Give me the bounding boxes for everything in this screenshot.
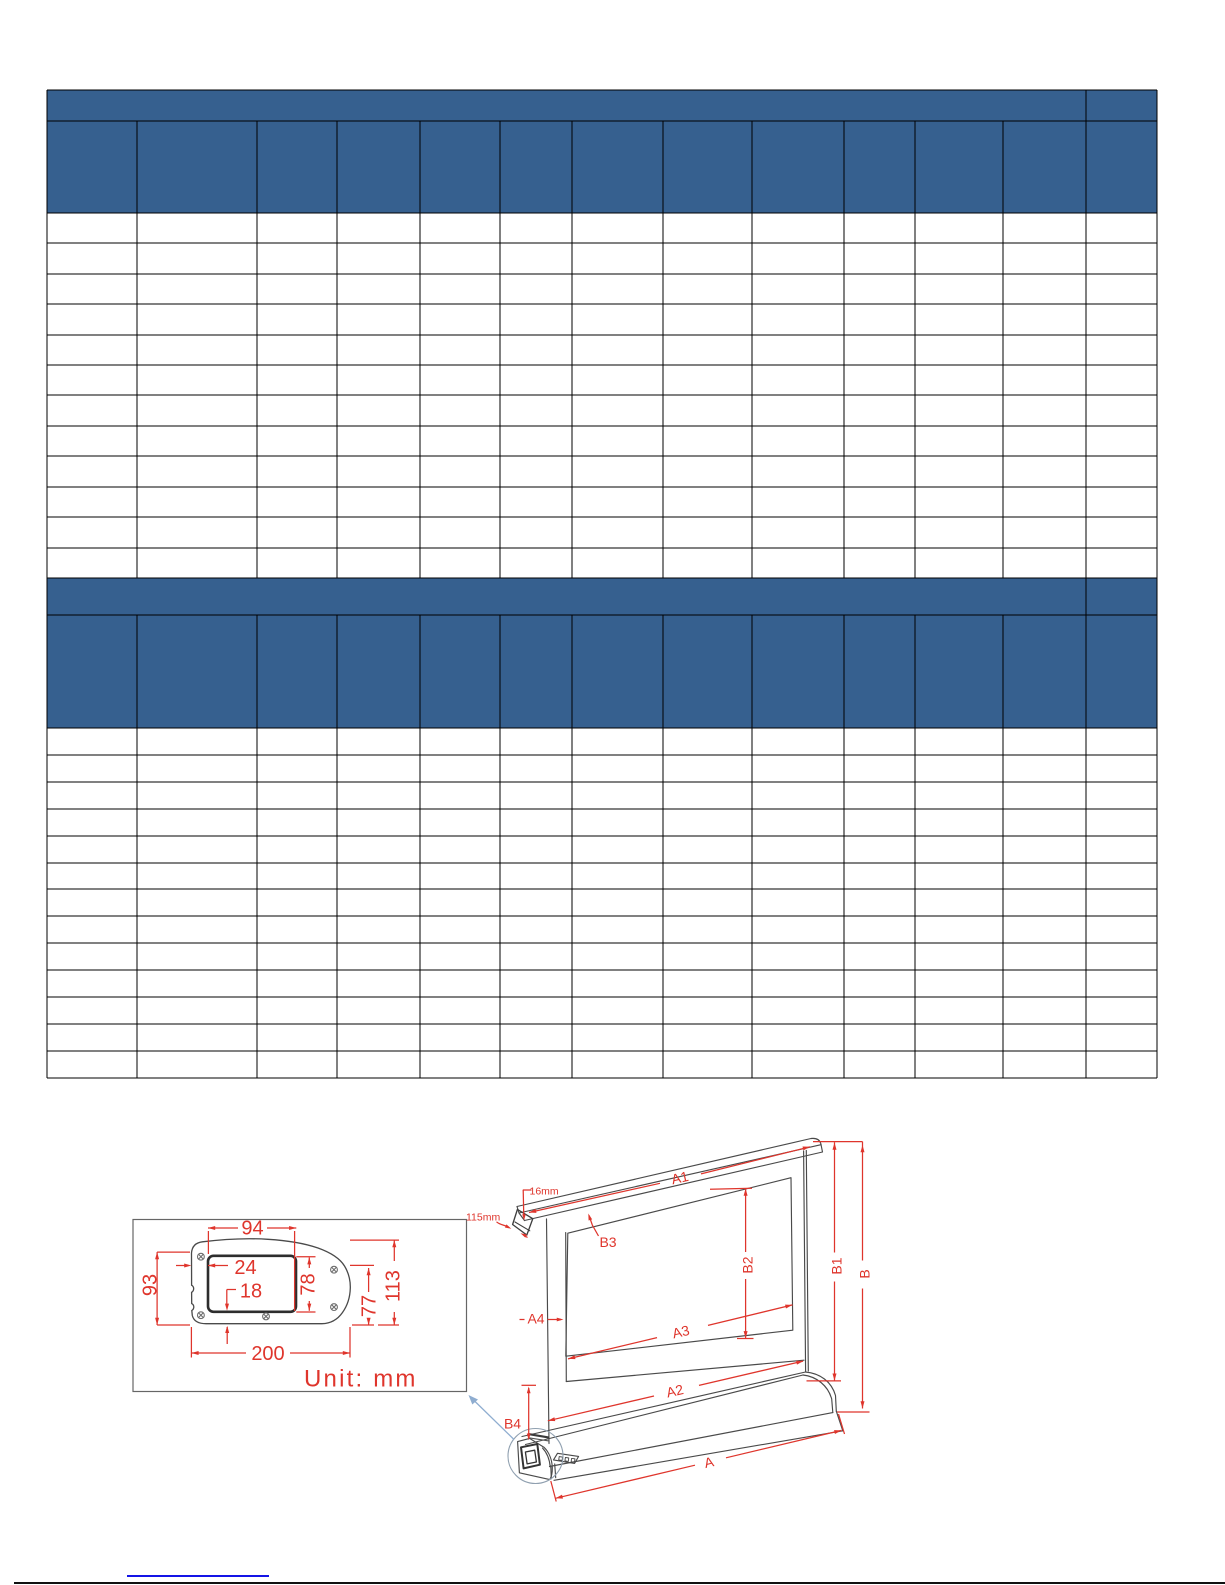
svg-text:A4: A4	[527, 1311, 544, 1327]
svg-text:16mm: 16mm	[530, 1186, 559, 1198]
svg-text:B2: B2	[740, 1256, 756, 1273]
svg-text:A3: A3	[671, 1322, 692, 1342]
svg-text:94: 94	[241, 1218, 263, 1240]
svg-text:A: A	[702, 1453, 715, 1471]
svg-text:200: 200	[251, 1343, 284, 1365]
svg-text:B3: B3	[599, 1234, 616, 1250]
svg-text:24: 24	[234, 1257, 256, 1279]
svg-text:B1: B1	[829, 1257, 845, 1274]
svg-text:18: 18	[240, 1280, 262, 1302]
svg-text:78: 78	[298, 1273, 320, 1295]
svg-text:B: B	[857, 1269, 873, 1278]
svg-text:113: 113	[383, 1270, 405, 1302]
svg-text:B4: B4	[504, 1416, 521, 1432]
svg-text:Unit: mm: Unit: mm	[304, 1366, 418, 1393]
svg-text:115mm: 115mm	[466, 1212, 500, 1224]
svg-text:A1: A1	[670, 1168, 690, 1187]
svg-text:A2: A2	[665, 1381, 686, 1401]
svg-text:93: 93	[140, 1274, 162, 1296]
svg-text:77: 77	[359, 1295, 381, 1317]
